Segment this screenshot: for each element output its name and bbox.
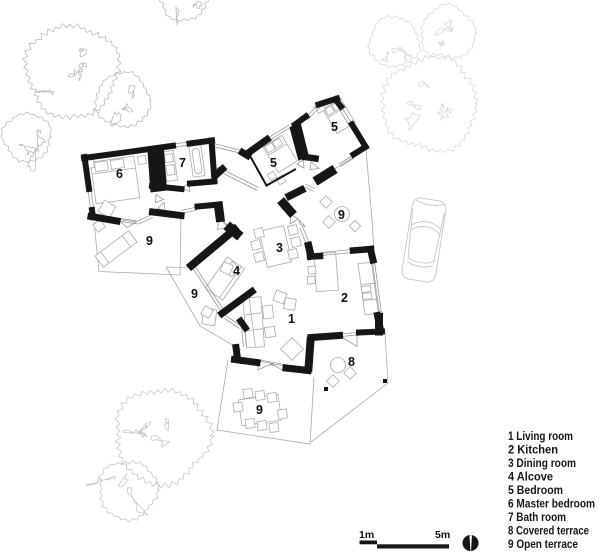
svg-text:9: 9 — [146, 234, 153, 248]
svg-text:2 Kitchen: 2 Kitchen — [508, 443, 558, 457]
svg-text:5: 5 — [331, 120, 338, 134]
svg-text:3 Dining room: 3 Dining room — [508, 456, 576, 470]
svg-text:6 Master bedroom: 6 Master bedroom — [508, 497, 595, 511]
svg-text:9: 9 — [191, 287, 198, 301]
svg-text:8 Covered terrace: 8 Covered terrace — [508, 524, 589, 538]
svg-text:8: 8 — [348, 355, 355, 369]
svg-text:5: 5 — [270, 156, 277, 170]
svg-text:4: 4 — [233, 264, 240, 278]
svg-text:4 Alcove: 4 Alcove — [508, 470, 553, 484]
svg-text:6: 6 — [116, 167, 123, 181]
svg-text:7: 7 — [179, 156, 186, 170]
svg-text:5 Bedroom: 5 Bedroom — [508, 483, 563, 497]
svg-text:3: 3 — [276, 241, 283, 255]
svg-text:1 Living room: 1 Living room — [508, 429, 573, 443]
svg-text:2: 2 — [341, 291, 348, 305]
svg-text:9: 9 — [256, 403, 263, 417]
svg-text:9 Open terrace: 9 Open terrace — [508, 537, 578, 551]
svg-text:5m: 5m — [435, 529, 450, 541]
svg-text:1m: 1m — [359, 529, 374, 541]
svg-text:9: 9 — [338, 208, 345, 222]
svg-text:1: 1 — [288, 312, 295, 326]
svg-text:7 Bath room: 7 Bath room — [508, 510, 566, 524]
